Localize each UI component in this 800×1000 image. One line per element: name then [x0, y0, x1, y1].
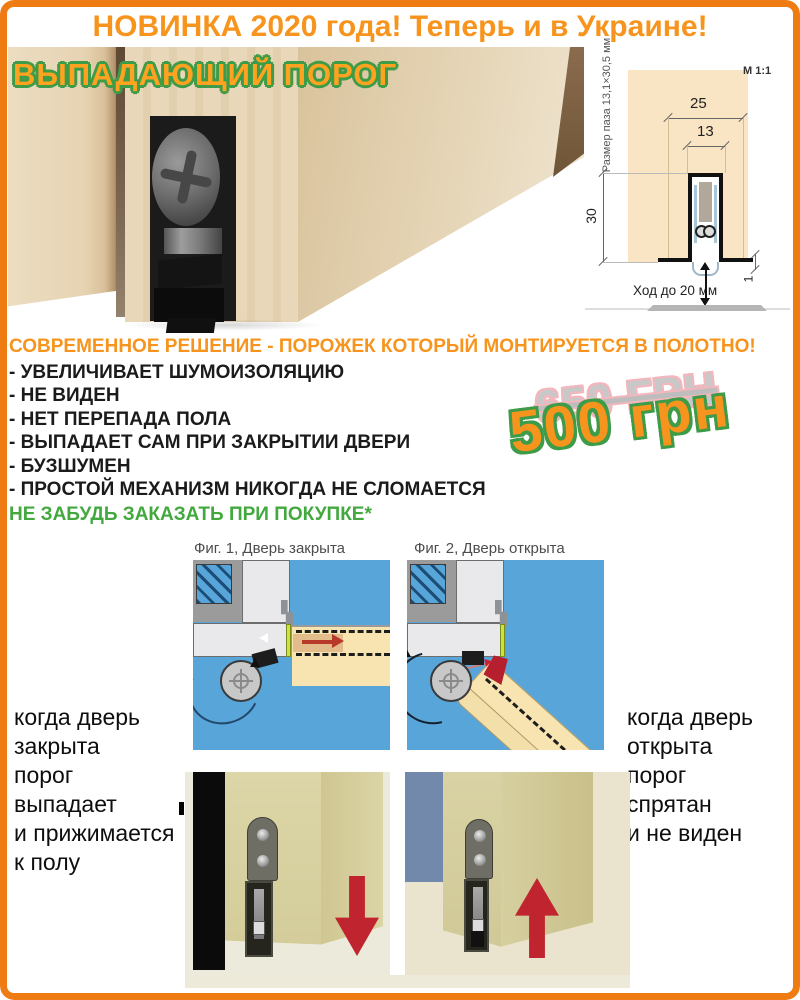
- travel-arrow: [705, 268, 707, 300]
- figure2-caption: Фиг. 2, Дверь открыта: [414, 540, 565, 557]
- floor-bar: [647, 305, 767, 311]
- threshold-channel-section: [688, 173, 723, 262]
- screw-icon: [474, 830, 486, 842]
- dim-1-label: 1: [741, 276, 755, 283]
- threshold-groove: [150, 116, 236, 321]
- feature-item: - УВЕЛИЧИВАЕТ ШУМОИЗОЛЯЦИЮ: [9, 361, 486, 384]
- lever-bracket: [462, 651, 484, 665]
- note-line: спрятан: [627, 790, 753, 819]
- threshold-channel: [245, 881, 273, 957]
- mount-plate: [247, 817, 278, 881]
- note-line: когда дверь: [14, 703, 174, 732]
- dim-extension: [687, 146, 688, 173]
- dark-background: [193, 772, 225, 970]
- push-arrow-shaft: [302, 640, 332, 644]
- push-arrow-head: [332, 634, 344, 648]
- dim-30-label: 30: [583, 208, 599, 224]
- dim-25-label: 25: [690, 95, 707, 112]
- dim-extension: [725, 146, 726, 173]
- groove-size-label: Размер паза 13,1×30,5 мм: [601, 30, 615, 180]
- photo-threshold-hidden: [405, 772, 630, 975]
- price-block: 650 ГРН 500 грн: [505, 366, 785, 486]
- note-line: когда дверь: [627, 703, 753, 732]
- door-bottom-rail: [292, 659, 390, 686]
- trigger-strip: [286, 624, 291, 657]
- dim-30-line: [603, 173, 604, 262]
- note-line: и не виден: [627, 819, 753, 848]
- travel-arrowhead-down: [700, 298, 710, 306]
- note-line: к полу: [14, 848, 174, 877]
- note-line: и прижимается: [14, 819, 174, 848]
- threshold-channel: [464, 879, 489, 952]
- rubber-fin-upper: [158, 254, 222, 290]
- figure-door-open: [407, 560, 604, 750]
- scale-label: М 1:1: [743, 65, 771, 77]
- feature-item: - ВЫПАДАЕТ САМ ПРИ ЗАКРЫТИИ ДВЕРИ: [9, 431, 486, 454]
- channel-roller-right: [703, 225, 716, 238]
- trigger-strip: [500, 624, 505, 657]
- dim-25-line: [668, 118, 743, 119]
- note-line: открыта: [627, 732, 753, 761]
- dashed-channel-line: [296, 630, 390, 633]
- rubber-fin-lower: [164, 318, 216, 333]
- product-title: ВЫПАДАЮЩИЙ ПОРОГ: [13, 57, 397, 93]
- rotation-arrowhead: [407, 648, 411, 657]
- flyer: НОВИНКА 2020 года! Теперь и в Украине! В…: [0, 0, 800, 1000]
- note-line: выпадает: [14, 790, 174, 819]
- dim-extension: [668, 118, 669, 262]
- threshold-plunger-knob: [152, 128, 220, 226]
- dim-extension: [743, 118, 744, 262]
- mount-plate: [465, 819, 493, 879]
- dim-13-label: 13: [697, 123, 714, 140]
- screw-icon: [257, 829, 269, 841]
- note-line: закрыта: [14, 732, 174, 761]
- door-leaf-closed: [292, 625, 390, 659]
- feature-item: - ПРОСТОЙ МЕХАНИЗМ НИКОГДА НЕ СЛОМАЕТСЯ: [9, 478, 486, 501]
- lever-link-arrowhead: [484, 657, 493, 666]
- travel-arrowhead-up: [700, 262, 710, 270]
- screw-icon: [257, 855, 269, 867]
- figure-door-closed: [193, 560, 390, 750]
- dashed-channel-line: [296, 653, 390, 656]
- edge-mark: [179, 802, 184, 815]
- dim-extension: [603, 173, 688, 174]
- headline: СОВРЕМЕННОЕ РЕШЕНИЕ - ПОРОЖЕК КОТОРЫЙ МО…: [9, 336, 756, 358]
- channel-lip-left: [658, 258, 688, 262]
- wall-hatch: [410, 564, 446, 604]
- door-side-face: [501, 772, 593, 975]
- photo-threshold-dropped: [185, 772, 390, 975]
- note-line: порог: [627, 761, 753, 790]
- channel-lip-right: [723, 258, 753, 262]
- rotation-arrowhead: [250, 658, 260, 667]
- rubber-seal: [471, 931, 484, 947]
- feature-item: - НЕ ВИДЕН: [9, 384, 486, 407]
- closed-state-note: когда дверь закрыта порог выпадает и при…: [14, 703, 174, 877]
- contact-arrow-icon: [259, 633, 268, 643]
- figure1-caption: Фиг. 1, Дверь закрыта: [194, 540, 345, 557]
- floor-strip: [185, 975, 630, 988]
- feature-item: - НЕТ ПЕРЕПАДА ПОЛА: [9, 408, 486, 431]
- channel-insert: [699, 182, 712, 222]
- open-state-note: когда дверь открыта порог спрятан и не в…: [627, 703, 753, 848]
- wall-hatch: [196, 564, 232, 604]
- feature-list: - УВЕЛИЧИВАЕТ ШУМОИЗОЛЯЦИЮ - НЕ ВИДЕН - …: [9, 361, 486, 501]
- order-note: НЕ ЗАБУДЬ ЗАКАЗАТЬ ПРИ ПОКУПКЕ*: [9, 504, 372, 526]
- rubber-fin-middle: [154, 288, 224, 322]
- aluminium-profile: [164, 228, 222, 254]
- banner-title: НОВИНКА 2020 года! Теперь и в Украине!: [0, 10, 800, 44]
- plunger-latch: [253, 921, 265, 935]
- feature-item: - БУЗШУМЕН: [9, 455, 486, 478]
- dim-extension: [603, 262, 658, 263]
- technical-diagram: Размер паза 13,1×30,5 мм М 1:1 25 13 30 …: [585, 50, 790, 345]
- note-line: порог: [14, 761, 174, 790]
- screw-icon: [474, 854, 486, 866]
- dim-13-line: [687, 146, 725, 147]
